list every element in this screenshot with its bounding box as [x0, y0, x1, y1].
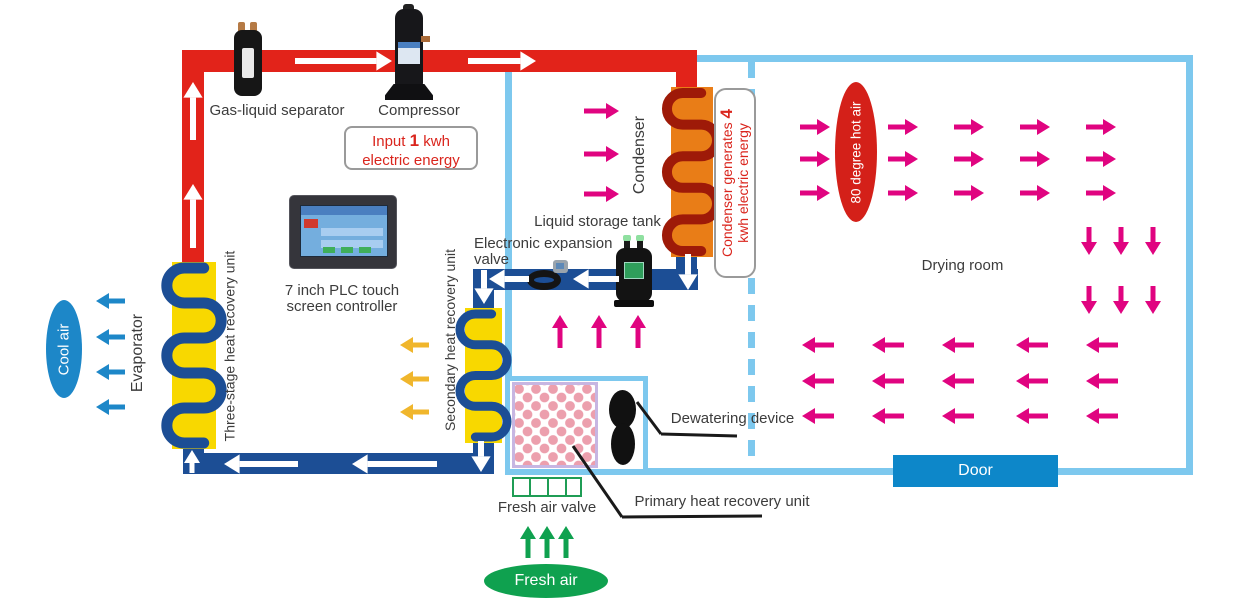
- flow-arrow-head: [1145, 242, 1161, 255]
- flow-arrow-head: [183, 82, 202, 98]
- flow-arrow-head: [971, 185, 984, 201]
- hot-air-badge: 80 degree hot air: [835, 82, 877, 222]
- flow-arrow-head: [184, 450, 200, 463]
- flow-arrow-head: [471, 456, 490, 472]
- flow-arrow-head: [905, 119, 918, 135]
- flow-arrow-head: [1103, 119, 1116, 135]
- flow-arrow-head: [1016, 408, 1029, 424]
- liquid-storage-tank-label: Liquid storage tank: [515, 214, 680, 230]
- flow-arrow-head: [1145, 301, 1161, 314]
- callout-line: [637, 402, 661, 434]
- plc-label: 7 inch PLC touch screen controller: [258, 283, 426, 315]
- heat-pump-dryer-diagram: Door: [0, 0, 1249, 609]
- callout-line: [661, 434, 737, 436]
- electronic-expansion-valve-label: Electronic expansion valve: [474, 236, 634, 268]
- flow-arrow-head: [1113, 242, 1129, 255]
- flow-arrow-head: [817, 185, 830, 201]
- flow-arrow-head: [1037, 151, 1050, 167]
- flow-arrow-head: [1016, 337, 1029, 353]
- cool-air-badge: Cool air: [46, 300, 82, 398]
- flow-arrow-head: [400, 371, 413, 387]
- condenser-energy-text: Condenser generates 4 kwh electric energ…: [719, 109, 751, 257]
- flow-arrow-head: [606, 146, 619, 162]
- flow-arrow-head: [520, 526, 536, 539]
- flow-arrow-head: [802, 337, 815, 353]
- flow-arrow-head: [606, 186, 619, 202]
- flow-arrow-head: [489, 269, 505, 288]
- input-energy-line1: Input 1 kwh: [346, 131, 476, 151]
- condenser-label: Condenser: [625, 97, 655, 212]
- flow-arrow-head: [606, 103, 619, 119]
- flow-arrow-head: [802, 373, 815, 389]
- flow-arrow-head: [520, 51, 536, 70]
- flow-arrow-head: [630, 315, 646, 328]
- flow-arrow-head: [1086, 337, 1099, 353]
- drying-room-label: Drying room: [895, 258, 1030, 274]
- flow-arrow-head: [573, 269, 589, 288]
- hot-air-text: 80 degree hot air: [849, 101, 864, 203]
- fresh-air-text: Fresh air: [514, 572, 577, 590]
- compressor-label: Compressor: [358, 103, 480, 119]
- flow-arrow-head: [942, 408, 955, 424]
- evaporator-label: Evaporator: [124, 298, 152, 408]
- flow-arrow-head: [905, 151, 918, 167]
- flow-arrow-head: [591, 315, 607, 328]
- flow-arrow-head: [558, 526, 574, 539]
- dewatering-device-label: Dewatering device: [660, 411, 805, 427]
- condenser-energy-callout: Condenser generates 4 kwh electric energ…: [714, 88, 756, 278]
- flow-arrow-head: [942, 337, 955, 353]
- flow-arrow-head: [1086, 373, 1099, 389]
- flow-arrow-head: [539, 526, 555, 539]
- arrows-overlay: [0, 0, 1249, 609]
- flow-arrow-head: [552, 315, 568, 328]
- callout-line: [622, 516, 762, 517]
- flow-arrow-head: [971, 151, 984, 167]
- flow-arrow-head: [1103, 151, 1116, 167]
- flow-arrow-head: [474, 288, 493, 304]
- flow-arrow-head: [183, 184, 202, 200]
- flow-arrow-head: [678, 274, 697, 290]
- flow-arrow-head: [942, 373, 955, 389]
- flow-arrow-head: [872, 373, 885, 389]
- cool-air-text: Cool air: [56, 323, 73, 375]
- flow-arrow-head: [872, 337, 885, 353]
- flow-arrow-head: [817, 119, 830, 135]
- flow-arrow-head: [905, 185, 918, 201]
- flow-arrow-head: [1016, 373, 1029, 389]
- three-stage-heat-recovery-label: Three-stage heat recovery unit: [216, 232, 242, 460]
- input-energy-line2: electric energy: [346, 151, 476, 170]
- flow-arrow-head: [1081, 242, 1097, 255]
- fresh-air-badge: Fresh air: [484, 564, 608, 598]
- flow-arrow-head: [872, 408, 885, 424]
- primary-heat-recovery-label: Primary heat recovery unit: [622, 494, 822, 510]
- flow-arrow-head: [817, 151, 830, 167]
- flow-arrow-head: [1103, 185, 1116, 201]
- flow-arrow-head: [1081, 301, 1097, 314]
- gas-liquid-separator-label: Gas-liquid separator: [196, 103, 358, 119]
- flow-arrow-head: [400, 404, 413, 420]
- flow-arrow-head: [96, 399, 109, 415]
- flow-arrow-head: [96, 364, 109, 380]
- secondary-heat-recovery-label: Secondary heat recovery unit: [437, 226, 463, 454]
- flow-arrow-head: [96, 329, 109, 345]
- flow-arrow-head: [400, 337, 413, 353]
- fresh-air-valve-label: Fresh air valve: [487, 500, 607, 516]
- flow-arrow-head: [1037, 185, 1050, 201]
- flow-arrow-head: [1037, 119, 1050, 135]
- flow-arrow-head: [376, 51, 392, 70]
- input-energy-callout: Input 1 kwh electric energy: [344, 126, 478, 170]
- flow-arrow-head: [352, 454, 368, 473]
- flow-arrow-head: [1113, 301, 1129, 314]
- flow-arrow-head: [1086, 408, 1099, 424]
- flow-arrow-head: [96, 293, 109, 309]
- flow-arrow-head: [971, 119, 984, 135]
